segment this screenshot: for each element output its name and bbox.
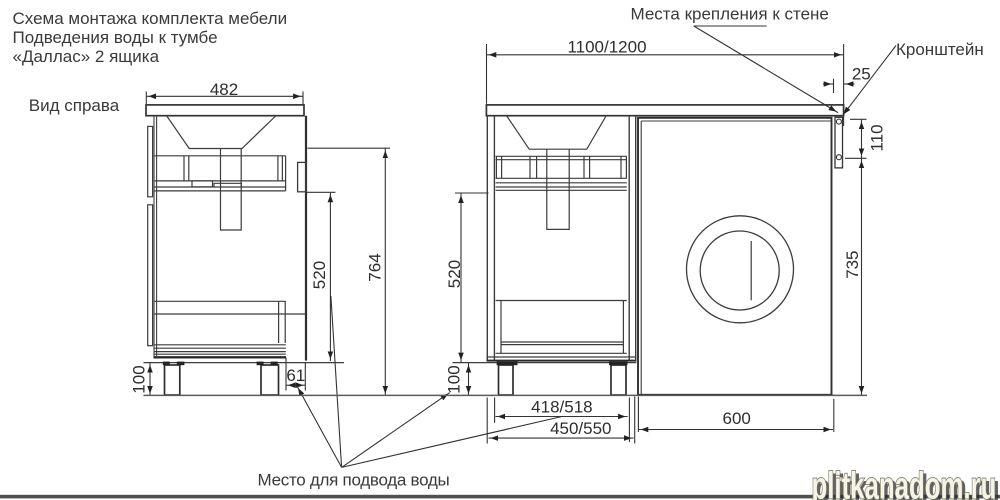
svg-text:520: 520 [310, 261, 329, 289]
svg-text:418/518: 418/518 [531, 398, 592, 417]
svg-text:735: 735 [843, 251, 862, 279]
svg-text:1100/1200: 1100/1200 [567, 37, 646, 56]
svg-text:Кронштейн: Кронштейн [896, 40, 984, 59]
svg-text:482: 482 [210, 80, 238, 99]
svg-text:Вид справа: Вид справа [29, 96, 120, 115]
svg-text:Подведения воды к тумбе: Подведения воды к тумбе [13, 28, 218, 47]
svg-text:110: 110 [867, 124, 886, 151]
svg-text:100: 100 [444, 365, 463, 393]
svg-text:520: 520 [445, 260, 464, 288]
svg-text:Место для подвода воды: Место для подвода воды [258, 470, 450, 489]
svg-text:600: 600 [723, 409, 751, 428]
svg-text:Места крепления к стене: Места крепления к стене [631, 5, 829, 24]
svg-text:450/550: 450/550 [550, 419, 611, 438]
svg-text:100: 100 [130, 365, 149, 393]
svg-text:764: 764 [366, 253, 385, 281]
svg-text:«Даллас» 2 ящика: «Даллас» 2 ящика [13, 47, 160, 66]
svg-text:61: 61 [286, 366, 305, 385]
svg-text:plitkanadom.ru: plitkanadom.ru [812, 465, 997, 500]
svg-text:25: 25 [852, 65, 871, 84]
svg-text:Схема монтажа комплекта мебели: Схема монтажа комплекта мебели [13, 9, 288, 28]
